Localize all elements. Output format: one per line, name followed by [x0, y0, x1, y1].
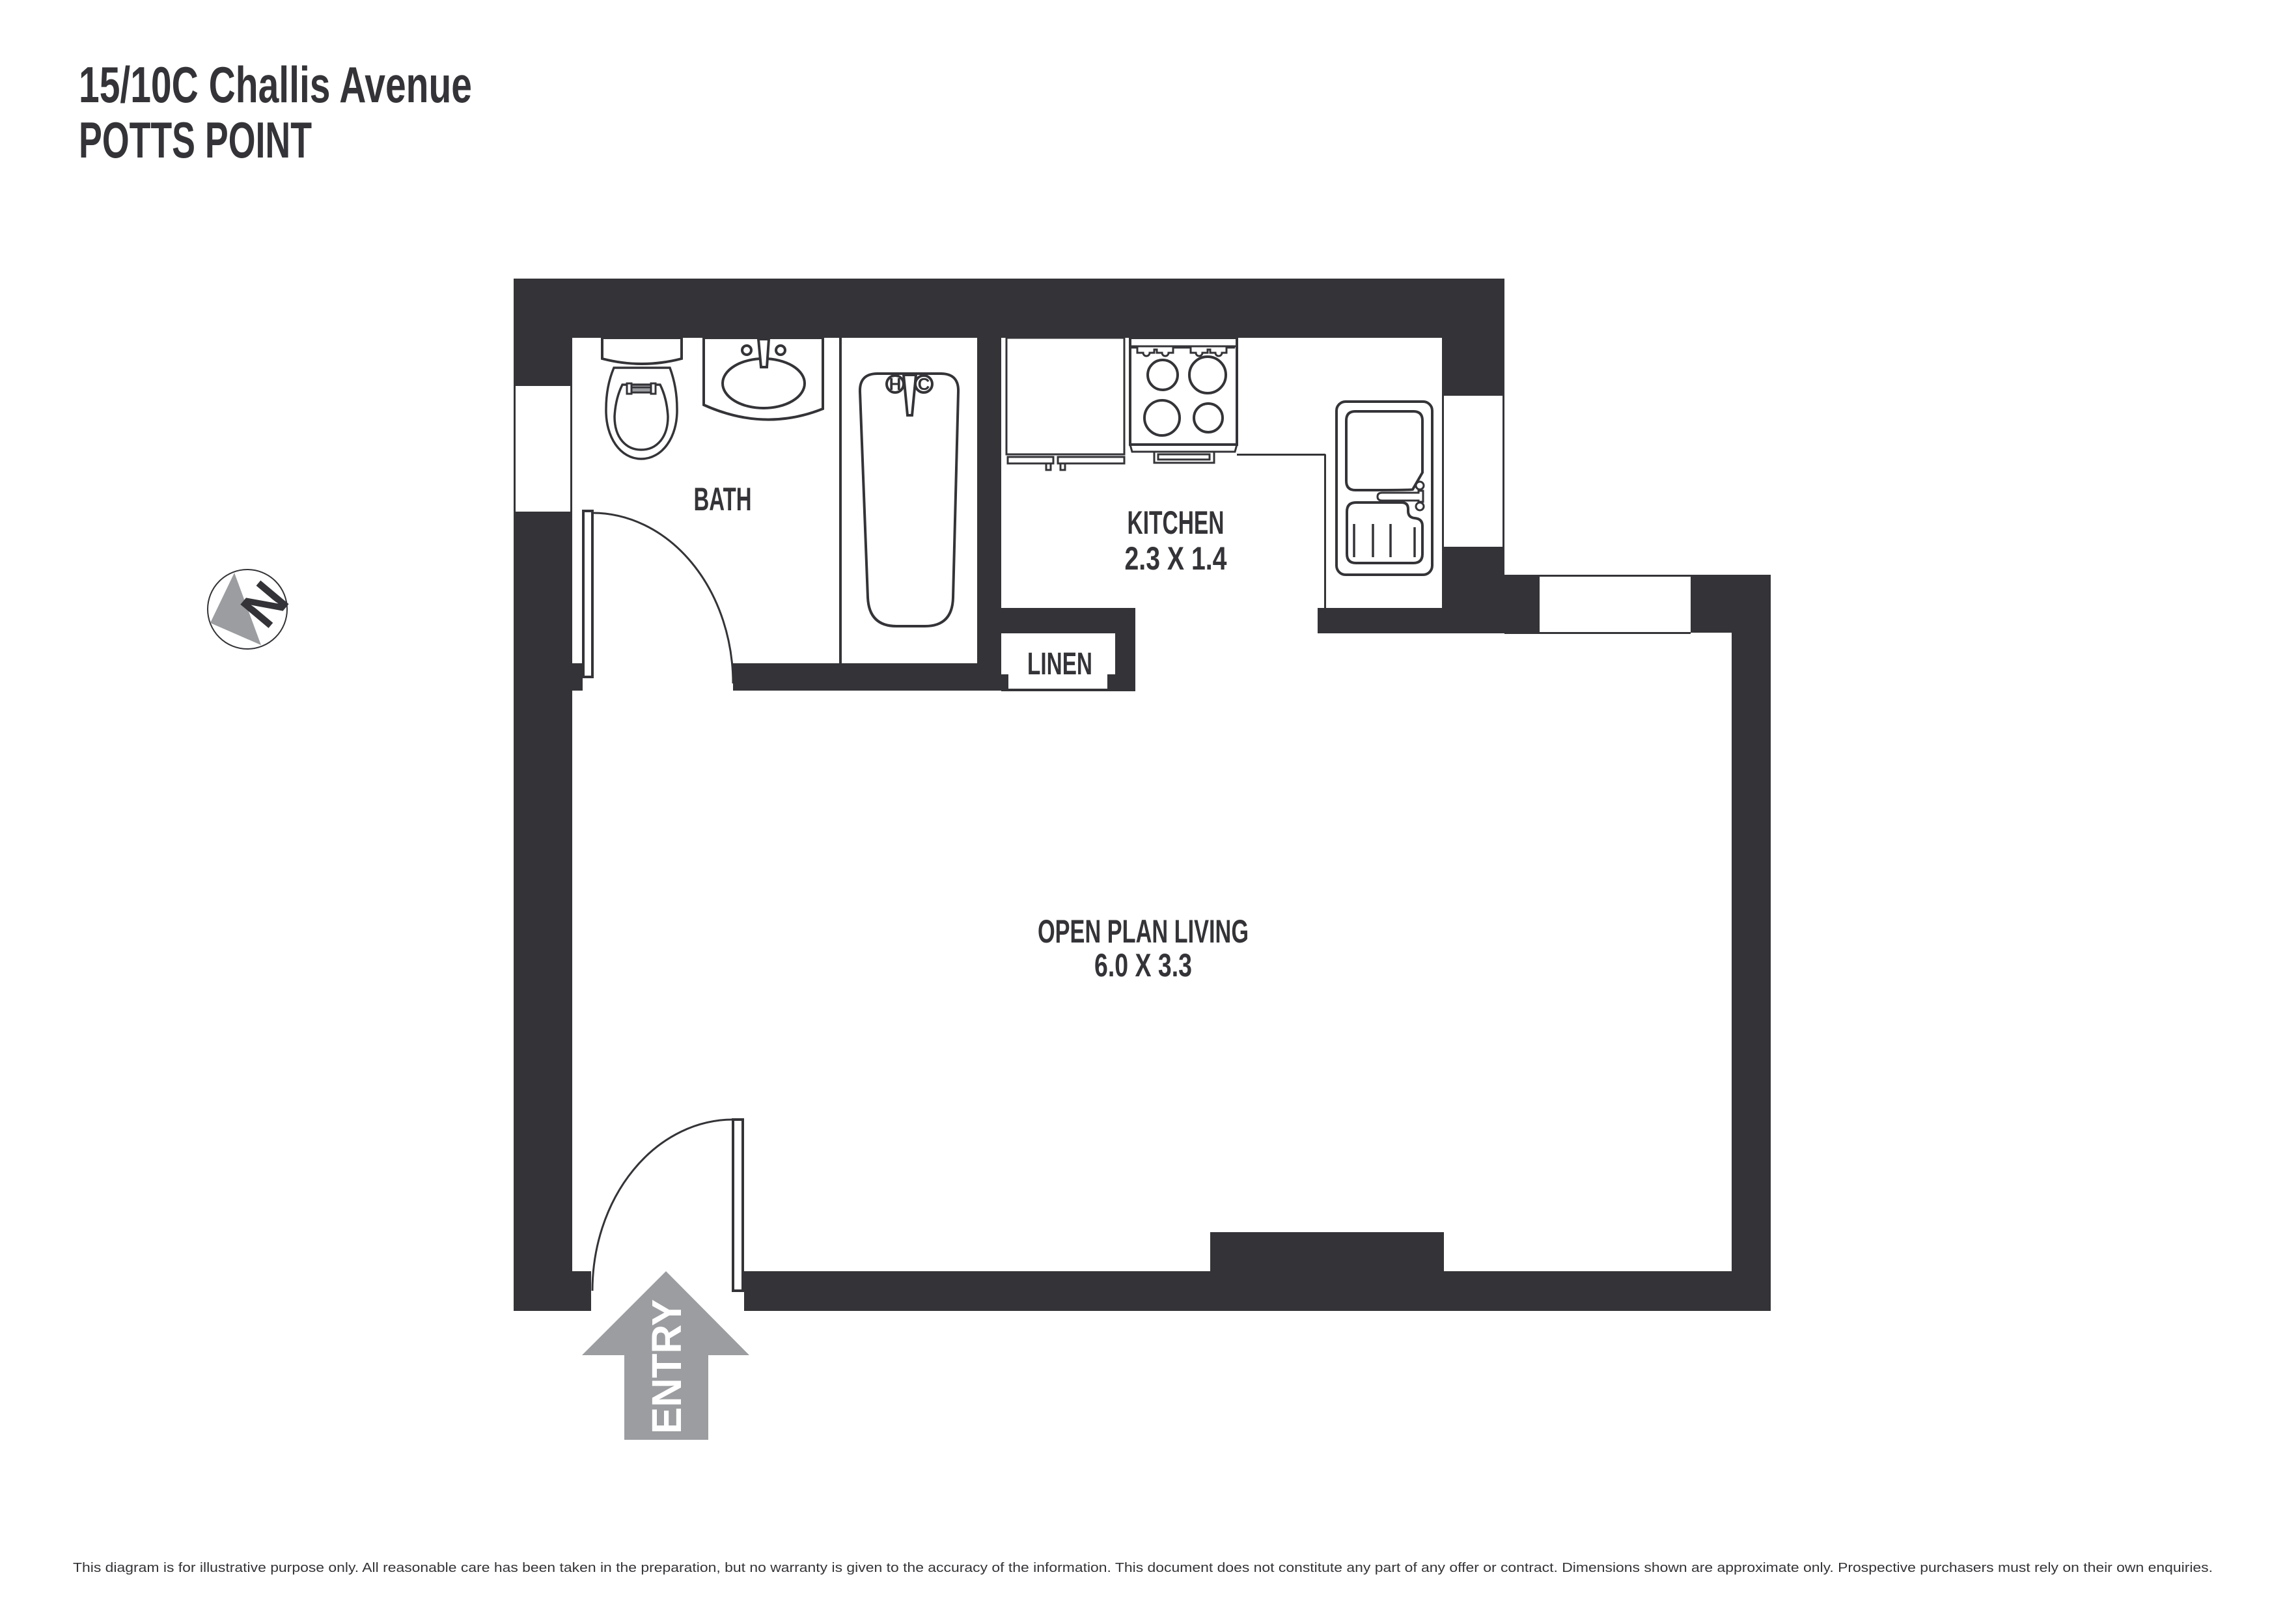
svg-text:POTTS POINT: POTTS POINT — [79, 111, 312, 169]
svg-text:6.0 X 3.3: 6.0 X 3.3 — [1094, 947, 1192, 984]
svg-text:2.3 X 1.4: 2.3 X 1.4 — [1125, 540, 1227, 577]
svg-text:This diagram is for illustrati: This diagram is for illustrative purpose… — [73, 1561, 2213, 1575]
svg-text:ENTRY: ENTRY — [643, 1299, 690, 1434]
svg-text:C: C — [918, 374, 930, 394]
svg-text:LINEN: LINEN — [1027, 647, 1092, 681]
svg-text:BATH: BATH — [694, 481, 752, 517]
svg-text:KITCHEN: KITCHEN — [1128, 504, 1225, 541]
svg-text:OPEN PLAN LIVING: OPEN PLAN LIVING — [1038, 913, 1249, 950]
svg-text:H: H — [889, 374, 902, 394]
svg-text:15/10C Challis Avenue: 15/10C Challis Avenue — [79, 56, 472, 113]
